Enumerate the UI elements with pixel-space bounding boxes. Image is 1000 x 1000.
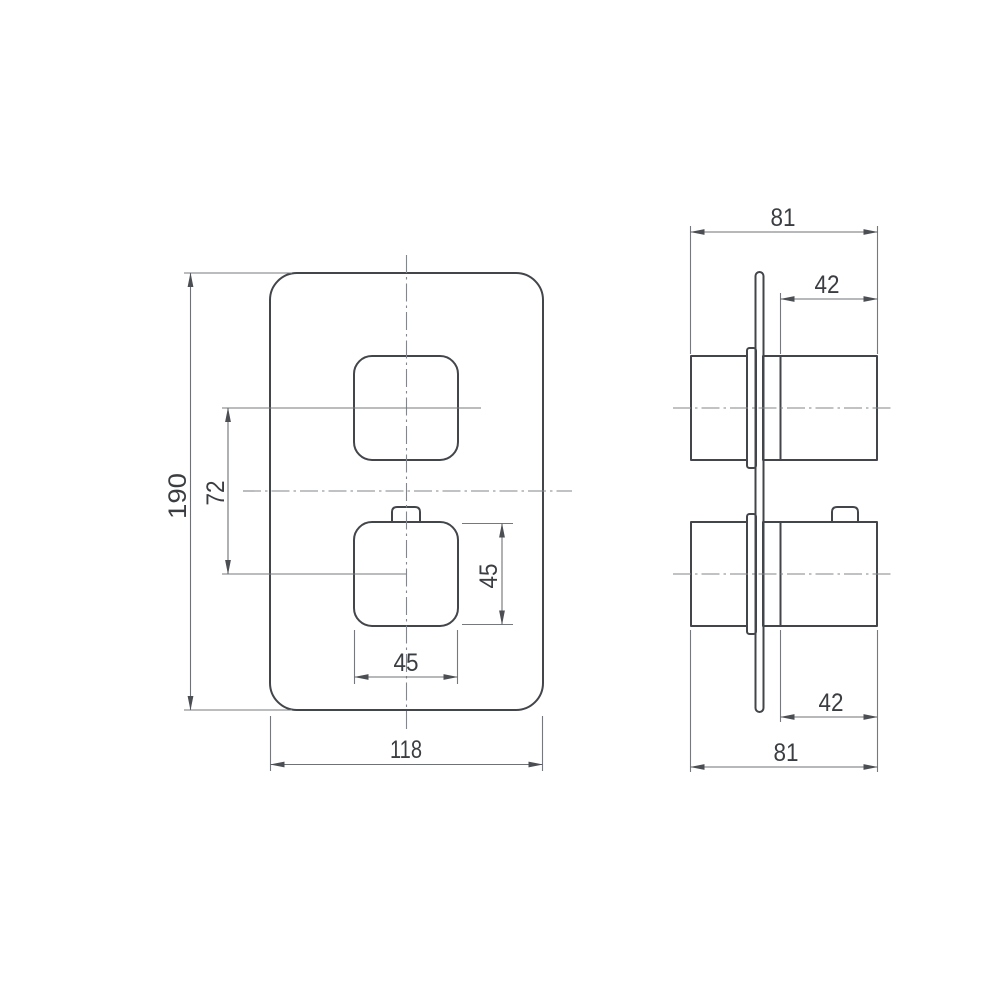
technical-drawing: 190 72 45 45 118 [0, 0, 1000, 1000]
dim-protrusion-top: 42 [781, 271, 878, 354]
dim-label-depth-bottom: 81 [774, 739, 799, 767]
dim-depth-bottom: 81 [691, 630, 878, 772]
dim-handle-spacing: 72 [202, 408, 230, 574]
front-view: 190 72 45 45 118 [164, 255, 572, 771]
dim-label-handle-width: 45 [394, 649, 419, 677]
dim-label-width: 118 [390, 736, 422, 764]
wall-plate-side [756, 272, 764, 712]
dim-label-protrusion-top: 42 [815, 271, 840, 299]
side-view: 81 42 42 81 [673, 204, 892, 772]
dim-depth-top: 81 [691, 204, 878, 354]
dim-label-depth-top: 81 [771, 204, 796, 232]
dim-label-height: 190 [164, 473, 192, 519]
drawing-canvas: 190 72 45 45 118 [0, 0, 1000, 1000]
dim-label-handle-spacing: 72 [202, 481, 230, 506]
dim-label-handle-height: 45 [475, 564, 503, 589]
dim-handle-height: 45 [462, 524, 513, 625]
dim-protrusion-bottom: 42 [781, 630, 878, 722]
lower-handle-tab-side [832, 507, 858, 522]
dim-label-protrusion-bottom: 42 [819, 689, 844, 717]
